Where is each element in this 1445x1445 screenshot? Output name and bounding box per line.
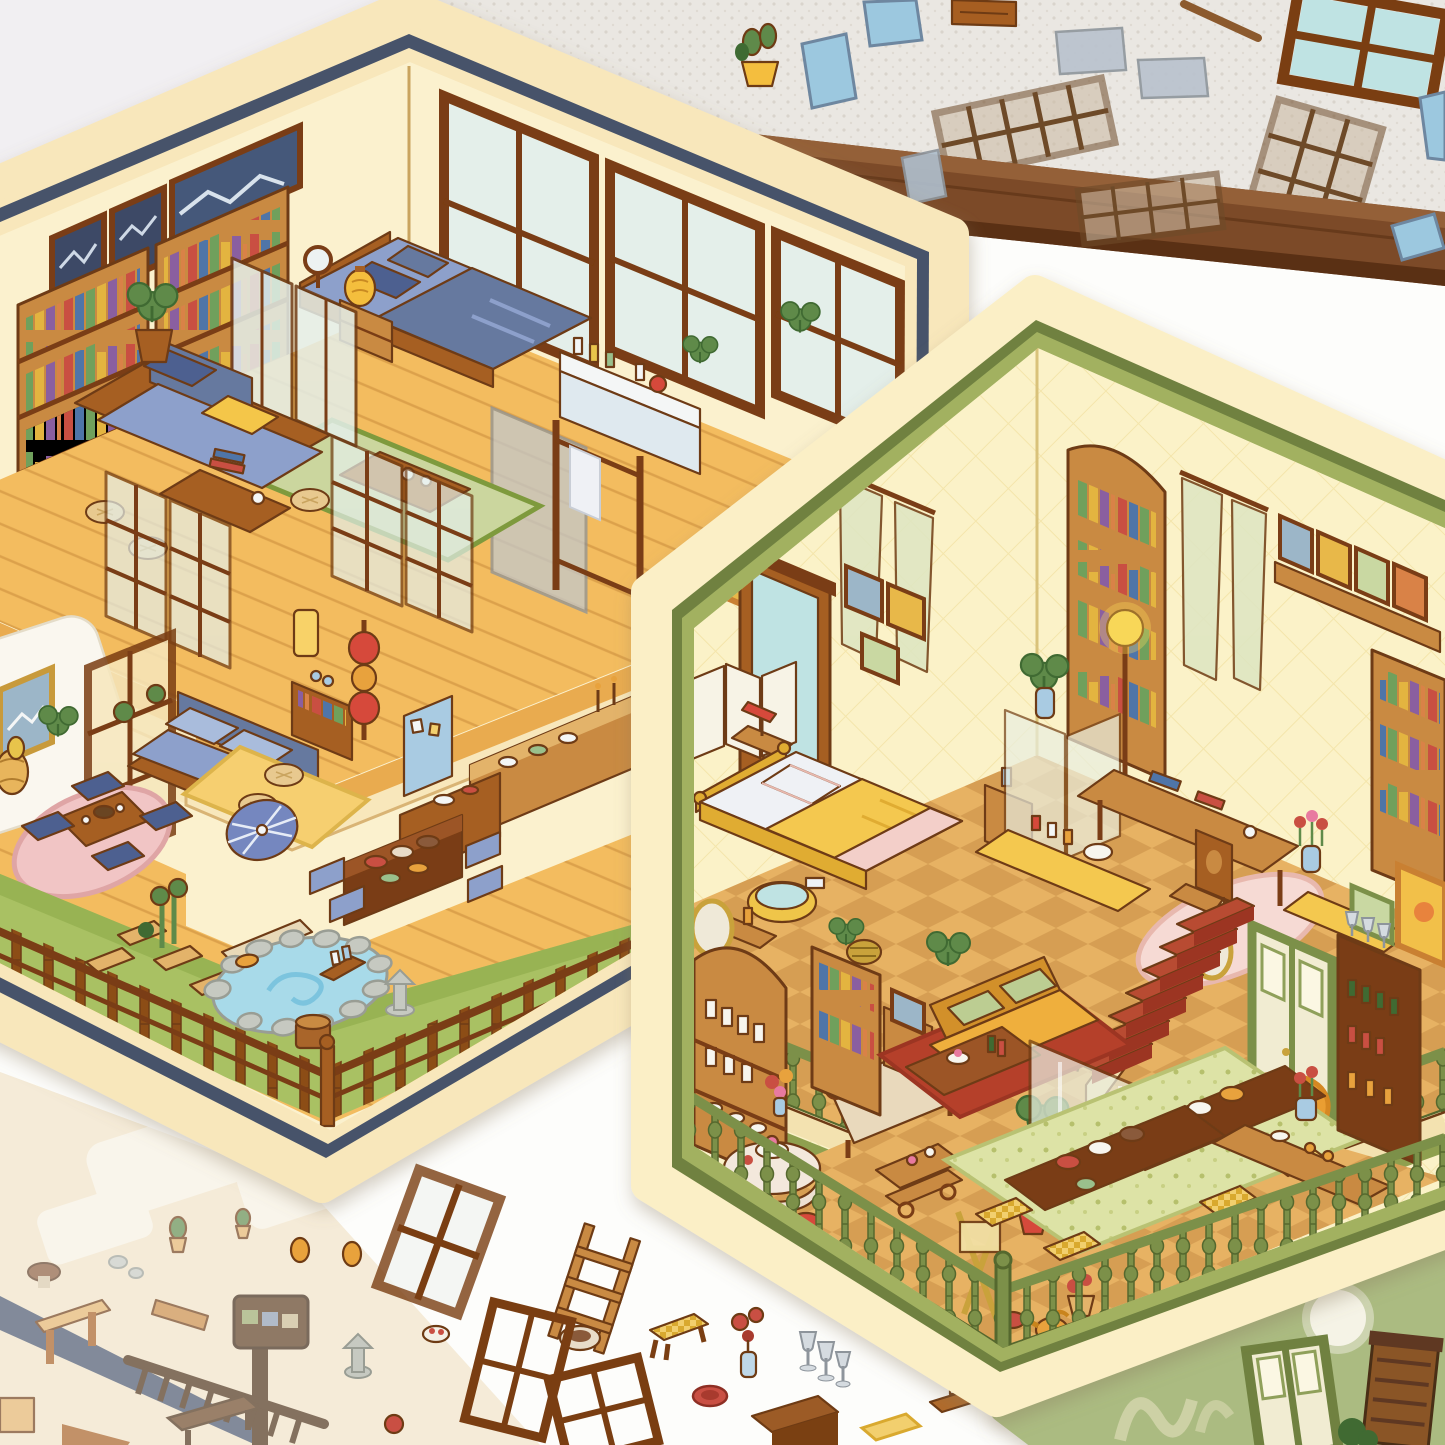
lattice-screen xyxy=(106,472,166,642)
gray-pane-sticker xyxy=(1138,58,1208,98)
teapot xyxy=(1271,1131,1289,1141)
teapot xyxy=(94,806,114,818)
drawer-box-sticker xyxy=(952,0,1016,26)
wooden-cabinet-sticker xyxy=(1358,1331,1443,1445)
white-cat xyxy=(1084,844,1112,860)
floor-pouf xyxy=(265,764,303,786)
corner-post xyxy=(321,1046,334,1126)
cup xyxy=(1244,826,1256,838)
green-door-sticker xyxy=(1246,1340,1339,1445)
pineapple xyxy=(8,737,24,759)
blue-pane-sticker xyxy=(864,0,922,46)
corner-post xyxy=(996,1266,1010,1358)
red-plate-sticker xyxy=(693,1386,727,1406)
tomato-sticker xyxy=(385,1415,403,1433)
woven-basket xyxy=(847,940,881,964)
pear-sticker xyxy=(343,1242,361,1266)
dessert-bowl-sticker xyxy=(423,1326,449,1342)
glowing-lamp xyxy=(294,610,318,656)
towel xyxy=(806,878,824,888)
cocktail xyxy=(1305,1143,1315,1153)
sunset-painting xyxy=(1398,865,1445,965)
photo-stage xyxy=(0,0,1445,1445)
scene-photo xyxy=(0,0,1445,1445)
blue-vase xyxy=(1036,688,1054,718)
tall-bookcase xyxy=(1372,650,1445,900)
floor-pouf xyxy=(291,489,329,511)
lattice-screen xyxy=(406,468,472,632)
gray-pane-sticker xyxy=(1056,28,1126,74)
lattice-screen xyxy=(332,436,402,606)
towel xyxy=(570,446,600,520)
blue-pane-sticker xyxy=(802,34,856,108)
pane-on-beam-sticker xyxy=(902,150,946,204)
pear-sticker xyxy=(291,1238,309,1262)
red-decor xyxy=(650,376,666,392)
lattice-screen xyxy=(170,500,230,668)
